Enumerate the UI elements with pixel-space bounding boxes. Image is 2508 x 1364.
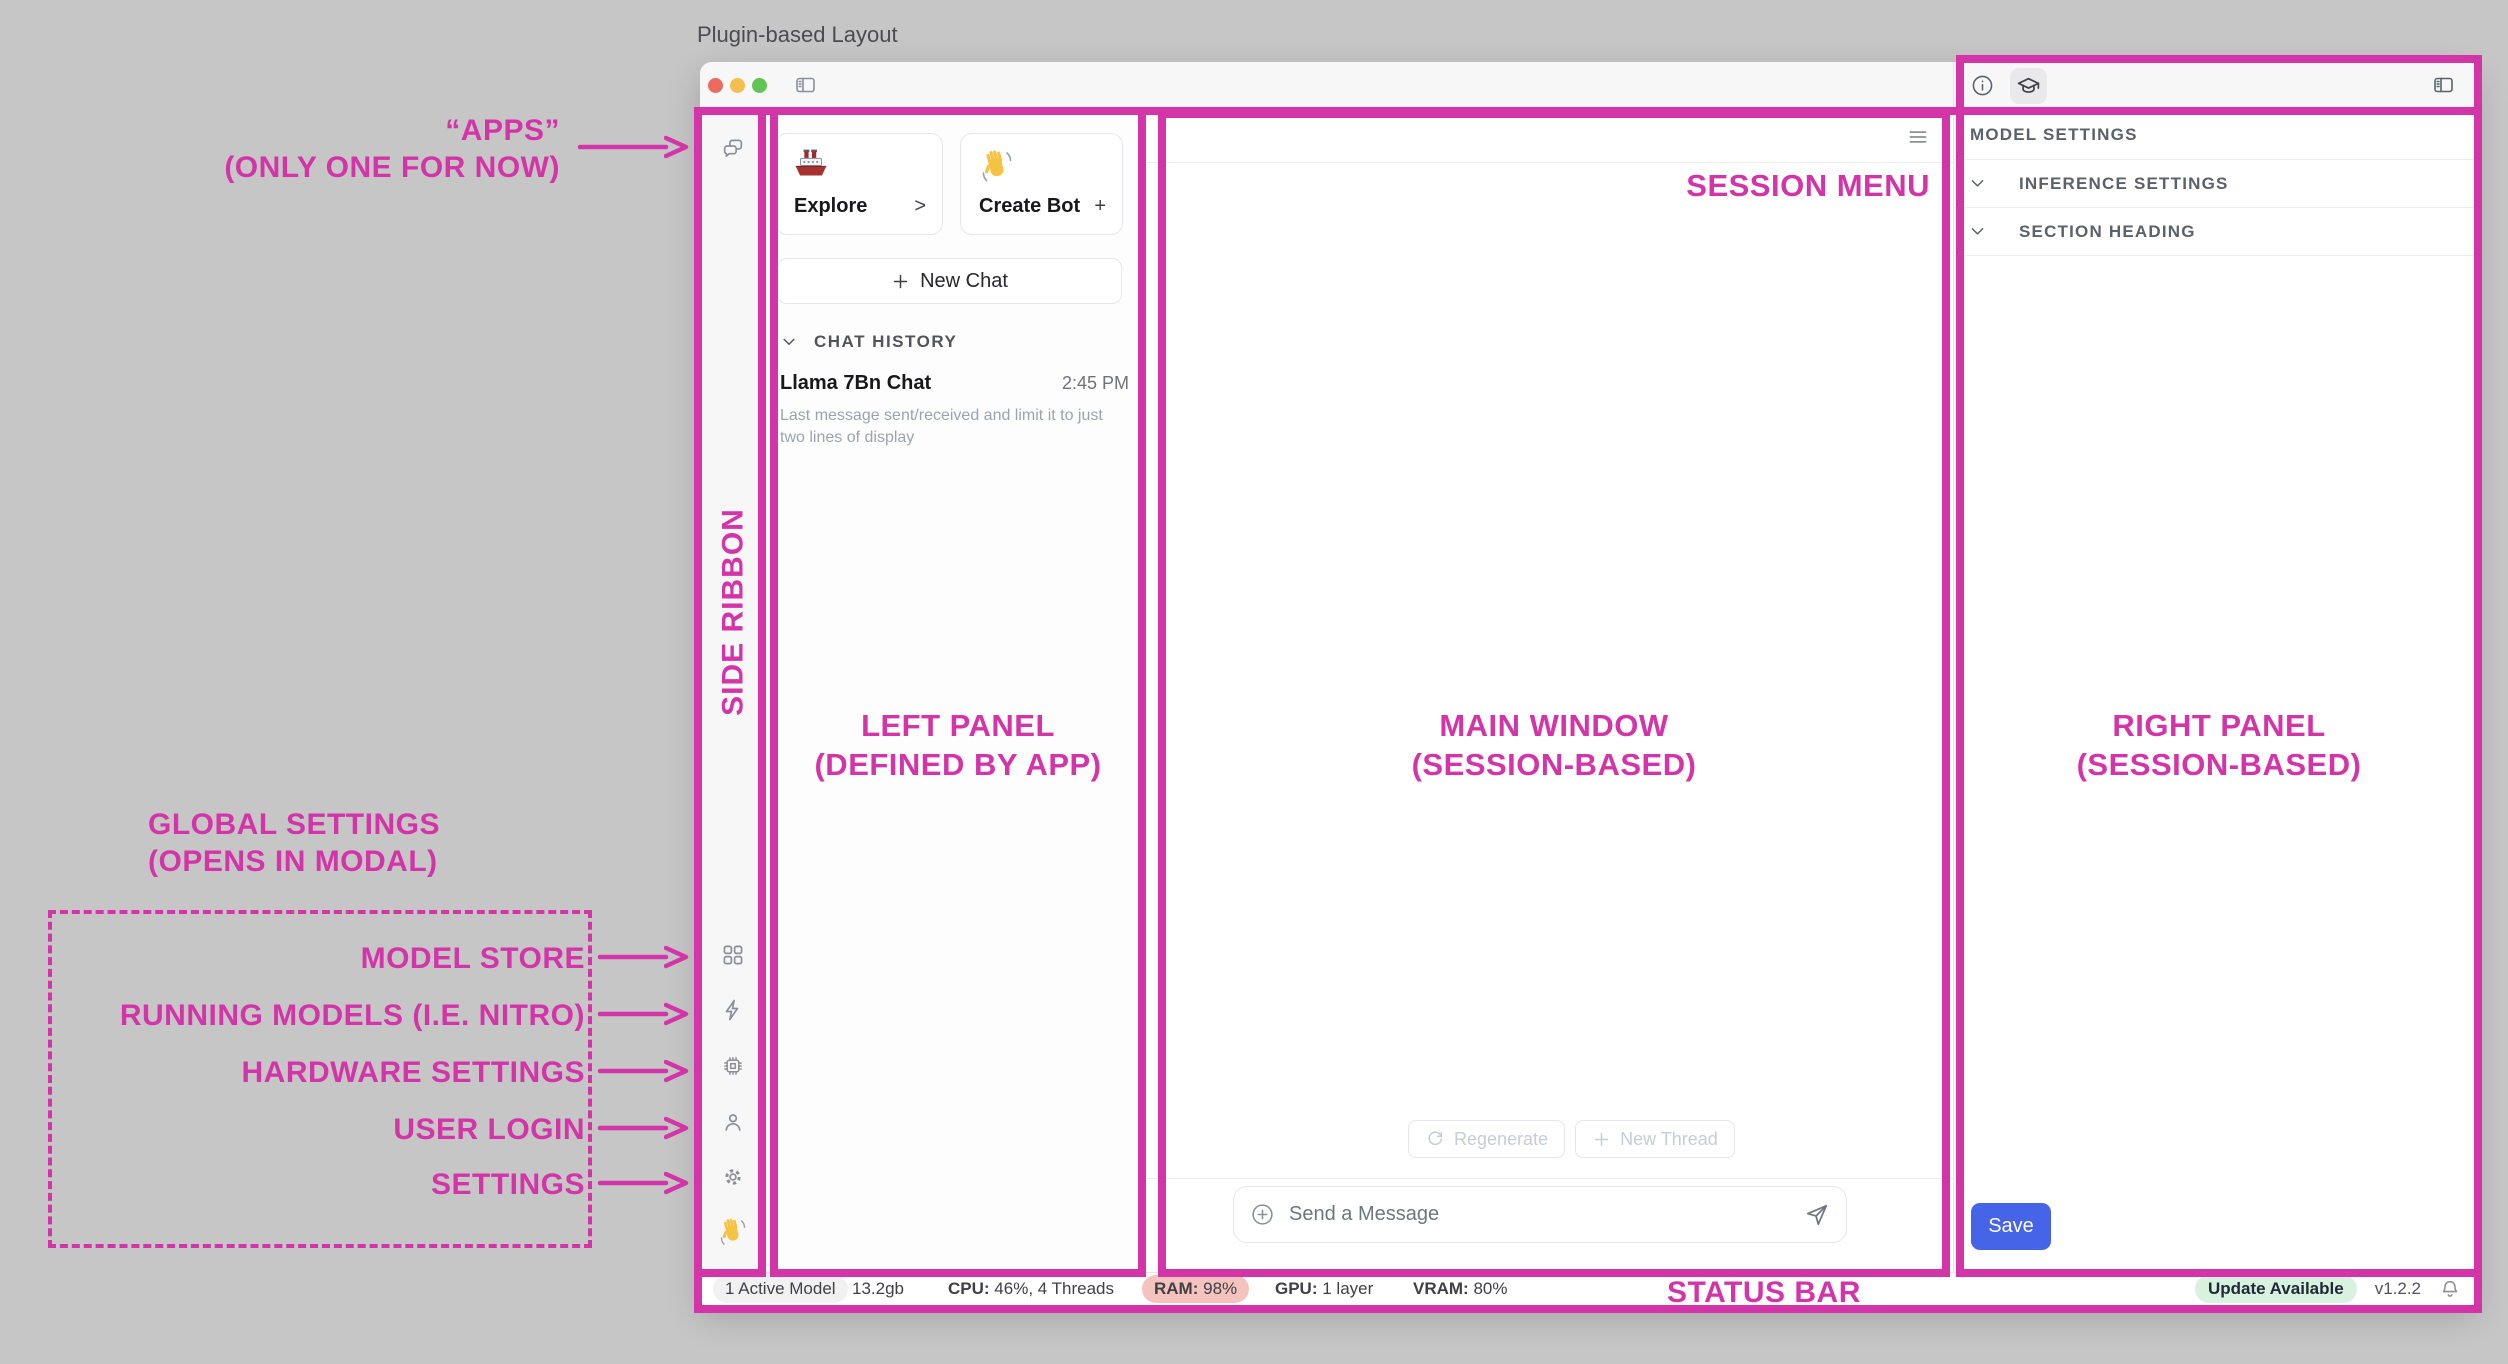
chevron-down-icon (780, 333, 798, 351)
explore-label: Explore (794, 195, 867, 218)
active-model-badge: 1 Active Model (713, 1275, 848, 1303)
hamburger-icon[interactable] (1905, 124, 1931, 150)
plus-icon (1592, 1130, 1611, 1149)
vram-usage: VRAM: 80% (1413, 1279, 1507, 1299)
memory-usage: 13.2gb (852, 1279, 904, 1299)
close-icon[interactable] (708, 78, 723, 93)
save-button[interactable]: Save (1971, 1203, 2051, 1250)
chevron-down-icon (1968, 174, 1987, 193)
chat-title: Llama 7Bn Chat (780, 372, 931, 395)
right-panel-header (1954, 62, 2475, 110)
inference-settings-label: INFERENCE SETTINGS (2019, 174, 2229, 194)
send-icon[interactable] (1804, 1202, 1830, 1228)
annotation-dashed-global-settings-box (48, 910, 592, 1248)
gear-icon[interactable] (721, 1165, 745, 1189)
app-window: Explore > Create Bot + New Chat (700, 62, 2475, 1305)
frame-title: Plugin-based Layout (697, 22, 898, 48)
zoom-icon[interactable] (752, 78, 767, 93)
new-chat-label: New Chat (920, 270, 1008, 293)
chat-bubbles-icon[interactable] (720, 136, 745, 161)
annotation-apps-label: “APPS”(ONLY ONE FOR NOW) (224, 112, 560, 186)
inference-settings-row[interactable]: INFERENCE SETTINGS (1954, 160, 2475, 208)
create-bot-plus: + (1094, 195, 1106, 218)
side-ribbon (700, 110, 766, 1272)
message-composer (1233, 1186, 1847, 1243)
section-heading-label: SECTION HEADING (2019, 222, 2196, 242)
chat-history-item[interactable]: Llama 7Bn Chat 2:45 PM Last message sent… (766, 372, 1141, 449)
status-bar: 1 Active Model 13.2gb CPU: 46%, 4 Thread… (700, 1272, 2475, 1305)
annotation-running-models-label: RUNNING MODELS (I.E. NITRO) (120, 997, 585, 1034)
cpu-usage: CPU: 46%, 4 Threads (948, 1279, 1114, 1299)
regenerate-button[interactable]: Regenerate (1408, 1120, 1565, 1158)
update-available-badge[interactable]: Update Available (2195, 1275, 2357, 1303)
model-settings-heading: MODEL SETTINGS (1954, 110, 2475, 160)
chat-preview: Last message sent/received and limit it … (766, 395, 1141, 449)
thread-actions: Regenerate New Thread (1408, 1120, 1735, 1158)
minimize-icon[interactable] (730, 78, 745, 93)
user-icon[interactable] (721, 1110, 745, 1134)
app-version: v1.2.2 (2375, 1279, 2421, 1299)
lightning-icon[interactable] (721, 998, 745, 1022)
sidebar-toggle-icon[interactable] (792, 73, 819, 102)
annotation-settings-label: SETTINGS (431, 1166, 585, 1203)
new-thread-button[interactable]: New Thread (1575, 1120, 1735, 1158)
ship-emoji (792, 146, 830, 184)
message-input[interactable] (1289, 1203, 1790, 1226)
info-icon[interactable] (1970, 73, 1995, 98)
circle-plus-icon[interactable] (1250, 1202, 1275, 1227)
explore-chevron: > (914, 195, 926, 218)
model-settings-label: MODEL SETTINGS (1970, 125, 2138, 145)
assistant-tab[interactable] (2010, 68, 2047, 104)
annotation-hardware-settings-label: HARDWARE SETTINGS (241, 1054, 585, 1091)
graduation-cap-icon (2016, 74, 2041, 99)
main-window-header (1142, 110, 1953, 163)
annotation-user-login-label: USER LOGIN (393, 1111, 585, 1148)
section-heading-row[interactable]: SECTION HEADING (1954, 208, 2475, 256)
chat-history-label: CHAT HISTORY (814, 332, 957, 352)
plus-icon (891, 272, 910, 291)
annotation-global-settings-label: GLOBAL SETTINGS(OPENS IN MODAL) (148, 806, 440, 880)
chevron-down-icon (1968, 222, 1987, 241)
window-titlebar (700, 62, 1953, 110)
annotated-mockup-canvas: Plugin-based Layout (0, 0, 2508, 1364)
composer-divider (1142, 1178, 1953, 1179)
annotation-model-store-label: MODEL STORE (361, 940, 585, 977)
chat-history-header[interactable]: CHAT HISTORY (780, 332, 957, 352)
ram-usage-badge: RAM: 98% (1142, 1275, 1249, 1303)
main-window: Regenerate New Thread (1142, 110, 1953, 1272)
bell-icon[interactable] (2439, 1278, 2461, 1300)
regenerate-label: Regenerate (1454, 1129, 1548, 1150)
create-bot-label: Create Bot (979, 195, 1080, 218)
refresh-icon (1425, 1129, 1445, 1149)
wave-hand-emoji[interactable] (716, 1215, 750, 1249)
apps-grid-icon[interactable] (721, 943, 745, 967)
right-panel: MODEL SETTINGS INFERENCE SETTINGS SECTIO… (1953, 62, 2475, 1272)
create-bot-card[interactable]: Create Bot + (960, 133, 1123, 235)
explore-card[interactable]: Explore > (775, 133, 943, 235)
chat-time: 2:45 PM (1062, 373, 1129, 394)
wave-hand-emoji (977, 146, 1017, 186)
gpu-usage: GPU: 1 layer (1275, 1279, 1373, 1299)
new-thread-label: New Thread (1620, 1129, 1718, 1150)
chip-icon[interactable] (721, 1054, 745, 1078)
new-chat-button[interactable]: New Chat (777, 258, 1122, 304)
sidebar-toggle-icon[interactable] (2430, 73, 2457, 97)
left-panel: Explore > Create Bot + New Chat (766, 110, 1142, 1272)
